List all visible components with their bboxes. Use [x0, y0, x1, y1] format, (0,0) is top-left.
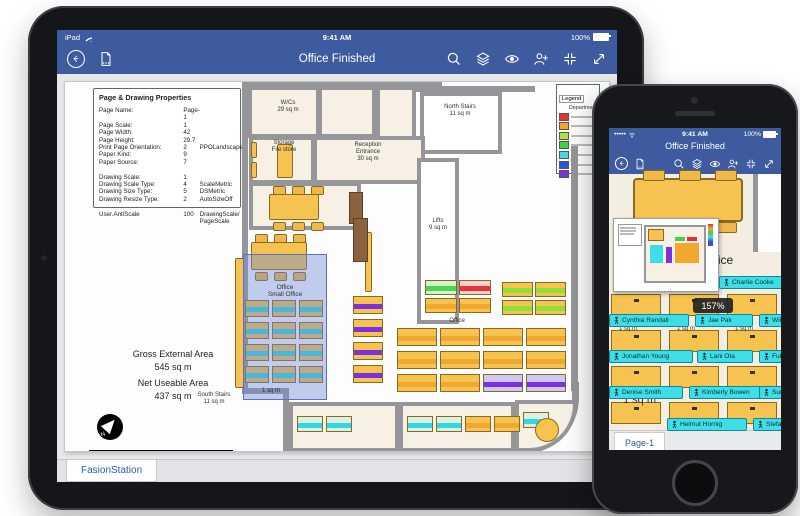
desk-shape — [299, 300, 323, 317]
desk-shape — [727, 366, 777, 388]
cabinet-shape — [251, 142, 257, 158]
gross-area-label: Gross External Area — [93, 348, 253, 361]
zoom-level-badge: 157% — [693, 298, 733, 313]
property-row: Drawing Resize Type: 2 AutoSizeOff — [99, 196, 235, 203]
zoom-overview-thumbnail[interactable] — [613, 218, 719, 292]
legend-swatch — [559, 141, 569, 149]
property-row: Page Name: Page-1 — [99, 107, 235, 122]
desk-shape — [611, 294, 661, 316]
iphone-screen: ••••• 9:41 AM 100% Office Finished — [609, 128, 781, 450]
desk-shape — [299, 322, 323, 339]
add-person-icon[interactable] — [533, 51, 549, 67]
ipad-front-camera — [40, 254, 48, 262]
export-document-icon[interactable] — [98, 51, 114, 67]
desk-shape — [535, 300, 566, 315]
layers-icon[interactable] — [475, 51, 491, 67]
bookshelf — [353, 218, 368, 262]
iphone-drawing-view[interactable]: Office Small Office 1 sq m 1 sq m 1 sq m… — [609, 174, 781, 430]
legend-swatch — [559, 170, 569, 178]
legend-swatch — [559, 132, 569, 140]
desk-shape — [425, 280, 457, 295]
property-row: Paper Source: 7 — [99, 159, 235, 166]
ipad-screen: iPad 9:41 AM 100% Office Finished — [57, 30, 617, 482]
desk-shape — [502, 300, 533, 315]
property-row: Page Width: 42 — [99, 129, 235, 136]
person-shape[interactable]: Charlie Cooke — [719, 276, 781, 289]
label-small-office-2: Small Office — [257, 291, 313, 298]
desk-shape — [407, 416, 433, 432]
desk-shape — [727, 330, 777, 352]
label-small-office-1: Office — [257, 284, 313, 291]
person-shape[interactable]: Jonathan Young — [609, 350, 693, 363]
desk-shape — [526, 351, 566, 369]
property-row: User.AntiScale 100 DrawingScale/ PageSca… — [99, 211, 235, 226]
person-shape[interactable]: Cynthia Randall — [609, 314, 689, 327]
battery-icon — [763, 131, 776, 138]
desk-shape — [245, 300, 269, 317]
net-area-label: Net Useable Area — [93, 377, 253, 390]
collapse-icon[interactable] — [562, 51, 578, 67]
add-person-icon[interactable] — [727, 158, 739, 170]
property-row — [99, 166, 235, 173]
desk-shape — [459, 280, 491, 295]
iphone-device: ••••• 9:41 AM 100% Office Finished — [592, 84, 798, 514]
desk-shape — [353, 319, 383, 337]
desk-shape — [436, 416, 462, 432]
desk-shape — [502, 282, 533, 297]
property-row: Page Scale: 1 — [99, 122, 235, 129]
room — [758, 174, 781, 252]
back-button[interactable] — [67, 50, 85, 68]
label-reception: Reception Entrance 30 sq m — [343, 142, 393, 163]
search-icon[interactable] — [446, 51, 462, 67]
room-north-stairs — [420, 92, 502, 154]
battery-icon — [593, 33, 609, 41]
chairs — [643, 170, 737, 181]
desk-shape — [483, 374, 523, 392]
cabinet-shape — [251, 162, 257, 178]
expand-icon[interactable] — [763, 158, 775, 170]
label-wc: W/Cs 29 sq m — [263, 100, 313, 114]
desk-shape — [611, 366, 661, 388]
person-shape[interactable]: Helmut Hornig — [667, 418, 747, 431]
chairs — [273, 222, 324, 231]
property-row: Print Page Orientation: 2 PPOLandscape — [99, 144, 235, 151]
properties-title: Page & Drawing Properties — [99, 93, 235, 102]
property-row — [99, 203, 235, 210]
desk-shape — [397, 351, 437, 369]
conference-table — [269, 194, 319, 220]
ipad-page-tab-bar: FasionStation — [57, 459, 617, 482]
desk-shape — [494, 416, 520, 432]
north-arrow: N — [97, 414, 123, 440]
property-row: Paper Kind: 9 — [99, 151, 235, 158]
battery-percent: 100% — [744, 131, 761, 138]
person-shape[interactable]: Denise Smith — [609, 386, 683, 399]
desk-shape — [440, 328, 480, 346]
desk-shape — [483, 328, 523, 346]
scale-bar — [89, 450, 233, 452]
desk-shape — [669, 330, 719, 352]
legend-swatch — [559, 113, 569, 121]
desk-shape — [611, 330, 661, 352]
ipad-device: iPad 9:41 AM 100% Office Finished — [28, 6, 644, 510]
legend-swatch — [559, 151, 569, 159]
export-document-icon[interactable] — [634, 158, 646, 170]
property-row: Drawing Scale Type: 4 ScaleMetric — [99, 181, 235, 188]
desk-shape — [297, 416, 323, 432]
desk-shape — [440, 374, 480, 392]
chairs — [255, 234, 306, 243]
label-lifts: Lifts 9 sq m — [415, 218, 461, 232]
chairs — [255, 272, 306, 281]
person-shape[interactable]: Stefan Knorr — [753, 418, 781, 431]
desk-shape — [353, 342, 383, 360]
expand-icon[interactable] — [591, 51, 607, 67]
label-unit-area: 1 sq m — [251, 388, 291, 395]
battery-percent: 100% — [571, 33, 590, 42]
page-tab-fasionstation[interactable]: FasionStation — [66, 460, 157, 482]
iphone-front-camera — [691, 97, 698, 104]
room — [318, 86, 376, 138]
label-north-stairs: North Stairs 11 sq m — [427, 104, 493, 118]
drawing-page[interactable]: Page & Drawing Properties Page Name: Pag… — [64, 81, 610, 452]
status-time: 9:41 AM — [57, 33, 617, 42]
desk-shape — [425, 298, 457, 313]
desk-shape — [727, 294, 777, 316]
round-table — [535, 418, 559, 442]
desk-shape — [299, 344, 323, 361]
person-shape[interactable]: Lani Ota — [697, 350, 753, 363]
iphone-page-tab-bar: Page-1 — [609, 430, 781, 450]
desk-shape — [459, 298, 491, 313]
desk-shape — [326, 416, 352, 432]
iphone-status-bar: ••••• 9:41 AM 100% — [609, 128, 781, 141]
drawing-canvas: Page & Drawing Properties Page Name: Pag… — [57, 74, 617, 459]
desk-shape — [535, 282, 566, 297]
iphone-document-title: Office Finished — [609, 141, 781, 153]
desk-shape — [669, 366, 719, 388]
gross-area-value: 545 sq m — [93, 361, 253, 374]
page-drawing-properties-box: Page & Drawing Properties Page Name: Pag… — [93, 88, 241, 208]
person-shape[interactable]: Fukiko Ogisu — [759, 350, 781, 363]
property-row: Page Height: 29.7 — [99, 137, 235, 144]
net-area-value: 437 sq m — [93, 390, 253, 403]
ipad-status-bar: iPad 9:41 AM 100% — [57, 30, 617, 44]
home-button[interactable] — [672, 460, 718, 506]
iphone-speaker — [675, 111, 715, 116]
ipad-toolbar: Office Finished — [57, 44, 617, 74]
legend-swatch — [559, 122, 569, 130]
desk-shape — [397, 374, 437, 392]
view-eye-icon[interactable] — [709, 158, 721, 170]
desk-shape — [483, 351, 523, 369]
desk-shape — [526, 374, 566, 392]
property-row: Drawing Scale: 1 — [99, 174, 235, 181]
desk-shape — [353, 365, 383, 383]
person-shape[interactable]: Sunil Koduri — [759, 386, 781, 399]
legend-swatch — [559, 161, 569, 169]
page-tab-page1[interactable]: Page-1 — [614, 432, 665, 450]
desk-shape — [272, 366, 296, 383]
conference-table — [633, 178, 743, 222]
desk-shape — [465, 416, 491, 432]
desk-shape — [272, 322, 296, 339]
label-storage: Storage File store — [261, 140, 307, 154]
desk-shape — [397, 328, 437, 346]
conference-table — [251, 242, 307, 270]
desk-shape — [353, 296, 383, 314]
desk-shape — [526, 328, 566, 346]
desk-shape — [440, 351, 480, 369]
person-shape[interactable]: William Vong — [759, 314, 781, 327]
legend-title: Legend — [559, 95, 584, 103]
label-office-large: Office — [437, 318, 477, 325]
desk-shape — [272, 300, 296, 317]
view-eye-icon[interactable] — [504, 51, 520, 67]
area-summary: Gross External Area 545 sq m Net Useable… — [93, 348, 253, 403]
chairs — [273, 186, 324, 195]
person-shape[interactable]: Jae Pak — [695, 314, 753, 327]
search-icon[interactable] — [673, 158, 685, 170]
collapse-icon[interactable] — [745, 158, 757, 170]
property-row: Drawing Size Type: 5 DSMetric — [99, 188, 235, 195]
desk-shape — [272, 344, 296, 361]
layers-icon[interactable] — [691, 158, 703, 170]
wall — [571, 146, 578, 391]
desk-shape — [299, 366, 323, 383]
desk-shape — [245, 322, 269, 339]
back-button[interactable] — [615, 157, 628, 170]
